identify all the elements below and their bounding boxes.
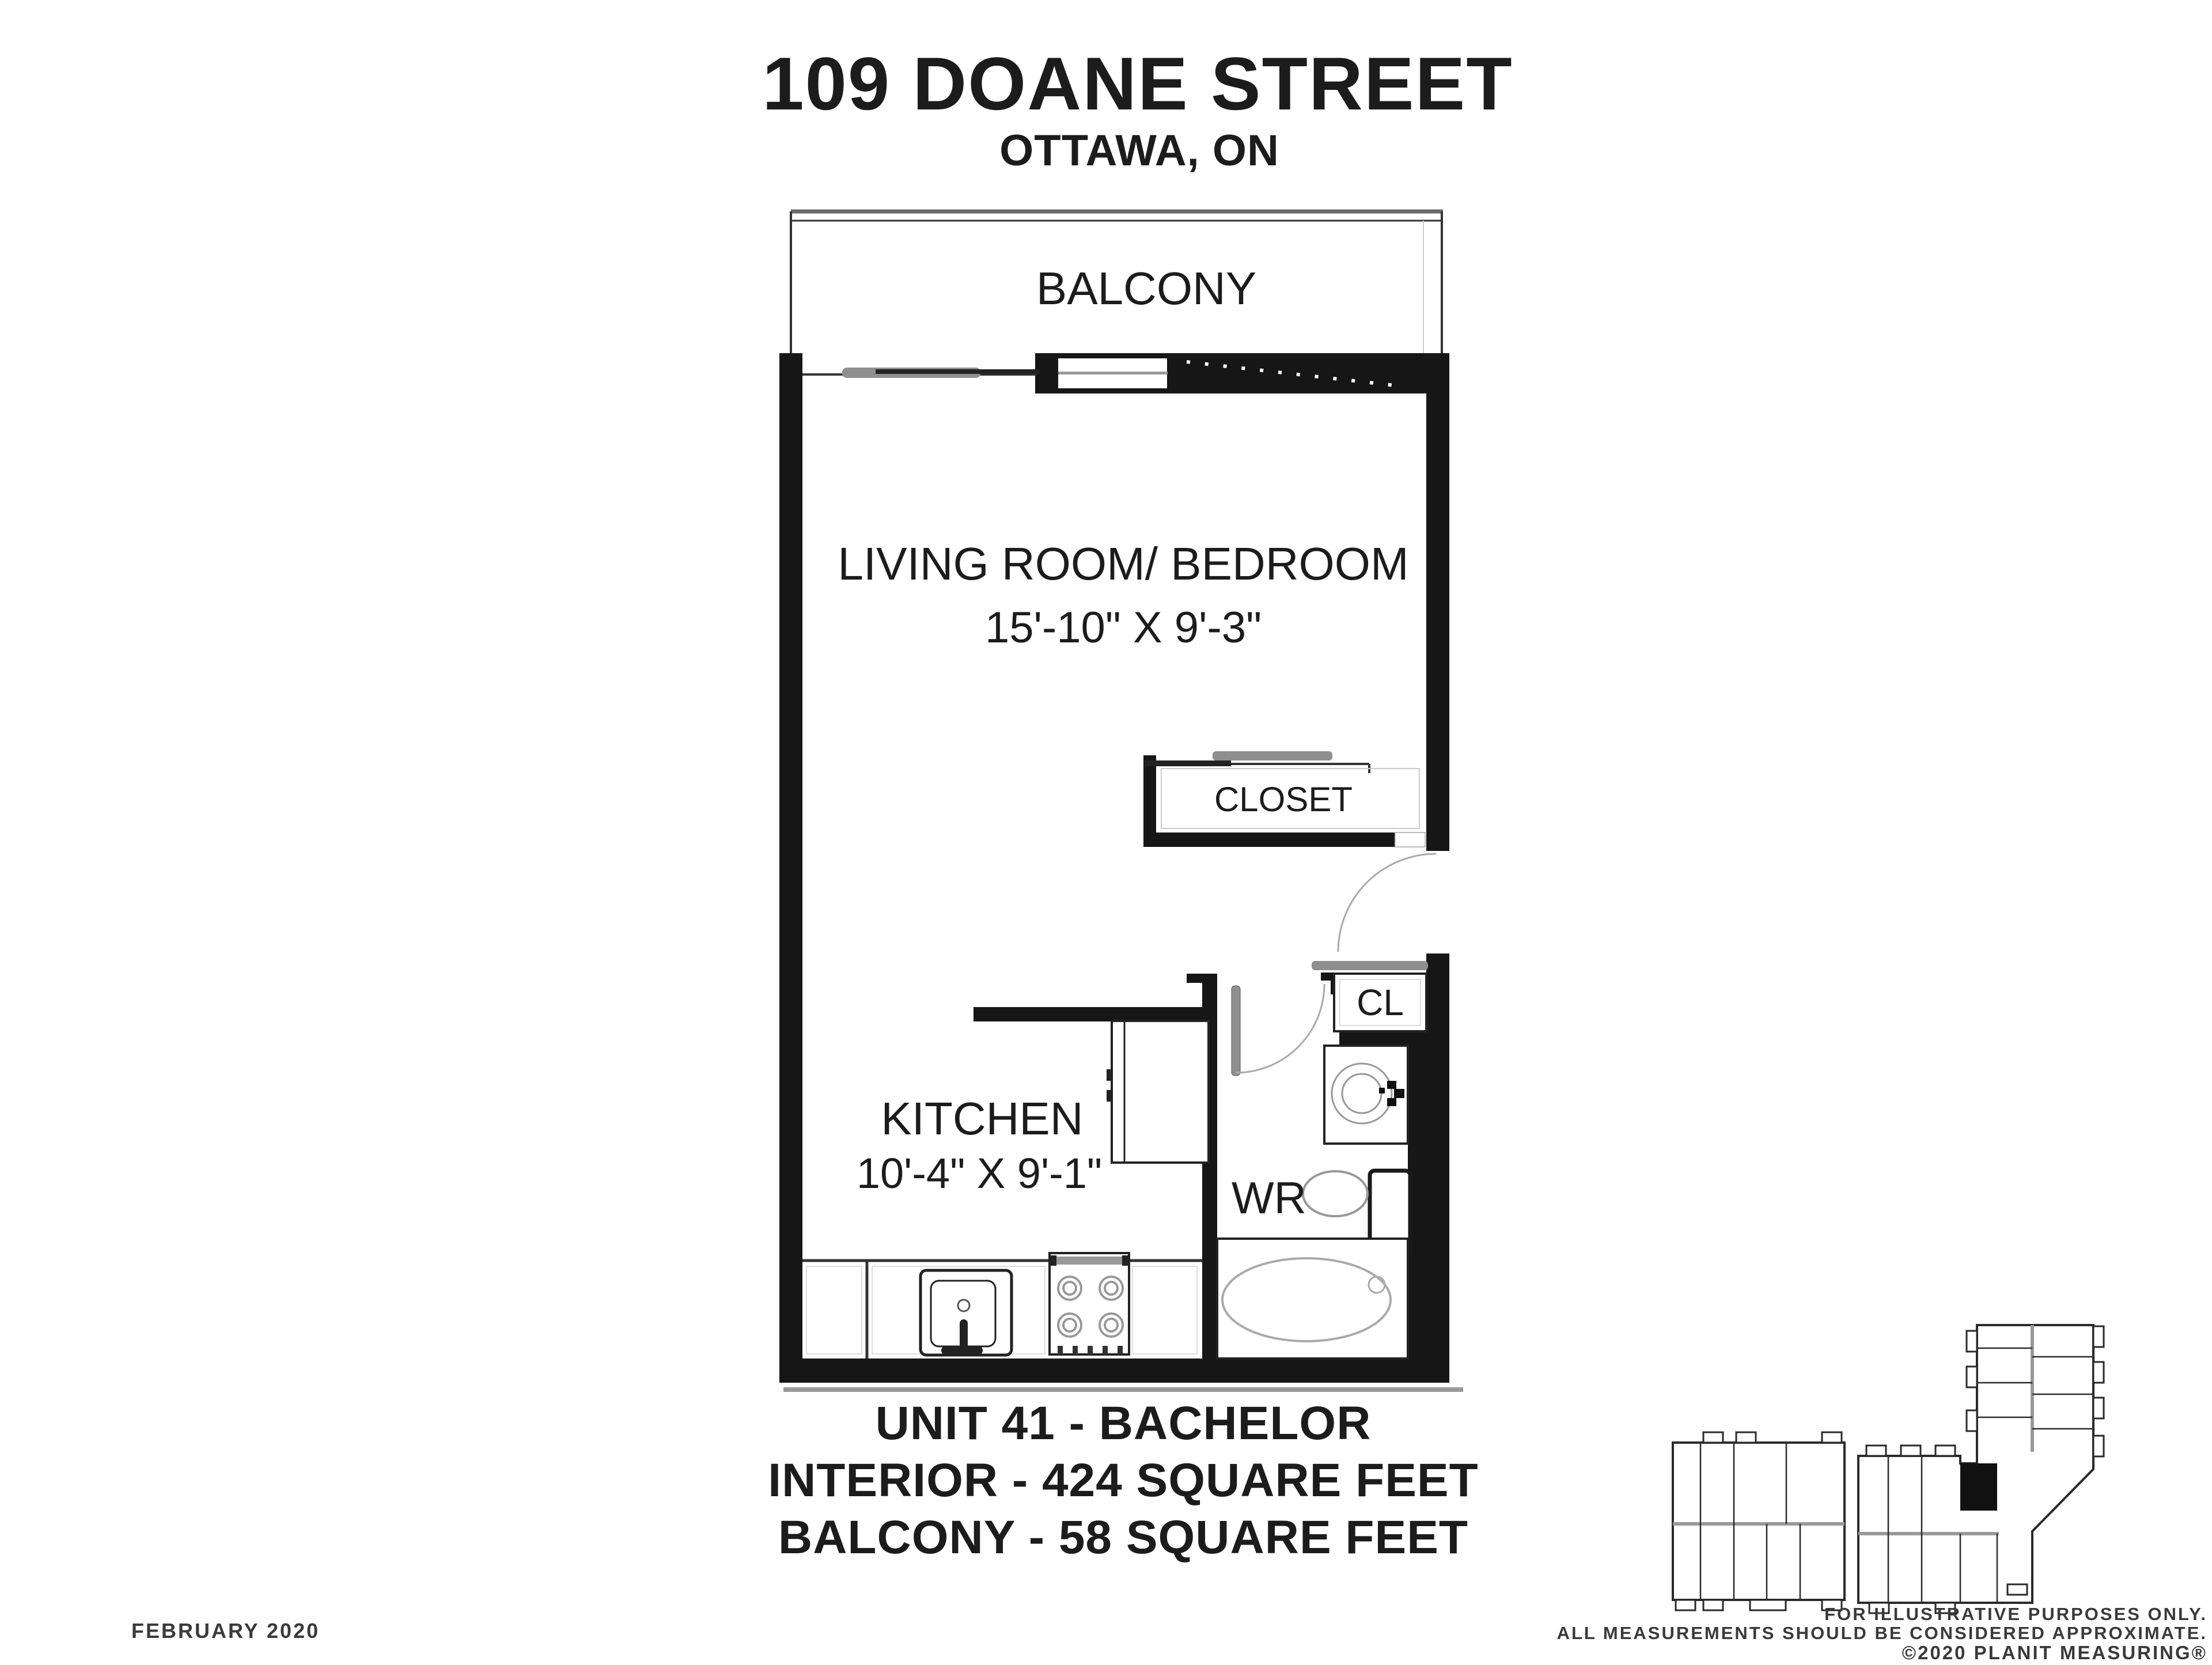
disclaimer-line-1: FOR ILLUSTRATIVE PURPOSES ONLY. (1824, 1604, 2207, 1625)
page-subtitle: OTTAWA, ON (999, 126, 1279, 176)
floorplan-page: 109 DOANE STREET OTTAWA, ON BALCONY LIVI… (0, 0, 2212, 1665)
summary-balcony-line: BALCONY - 58 SQUARE FEET (778, 1511, 1468, 1565)
summary-unit-line: UNIT 41 - BACHELOR (876, 1397, 1372, 1451)
living-room-label: LIVING ROOM/ BEDROOM (838, 538, 1408, 591)
balcony-label: BALCONY (1036, 262, 1256, 315)
kitchen-sink (921, 1270, 1012, 1355)
living-room-dimensions: 15'-10" X 9'-3" (985, 603, 1262, 653)
wr-door-swing (1232, 984, 1324, 1076)
plan-date: FEBRUARY 2020 (131, 1619, 320, 1643)
closet-label: CLOSET (1214, 779, 1353, 819)
page-title: 109 DOANE STREET (762, 40, 1513, 127)
disclaimer-line-2: ALL MEASUREMENTS SHOULD BE CONSIDERED AP… (1557, 1623, 2207, 1644)
stove (1050, 1253, 1129, 1354)
window-sliding-door (802, 353, 1168, 393)
key-plan-unit-marker (1960, 1463, 1997, 1511)
cl-closet-label: CL (1357, 981, 1404, 1024)
kitchen-label: KITCHEN (881, 1092, 1083, 1145)
washer (1324, 1046, 1408, 1144)
entry-door-swing-arc (1338, 854, 1436, 952)
key-plan (1673, 1325, 2104, 1613)
bathtub (1217, 1239, 1408, 1359)
summary-interior-line: INTERIOR - 424 SQUARE FEET (768, 1454, 1478, 1508)
refrigerator (1107, 1021, 1209, 1163)
copyright-line: ©2020 PLANIT MEASURING® (1902, 1642, 2207, 1664)
kitchen-dimensions: 10'-4" X 9'-1" (857, 1149, 1102, 1198)
exterior-walls (779, 353, 1463, 1392)
washroom-label: WR (1232, 1172, 1306, 1224)
